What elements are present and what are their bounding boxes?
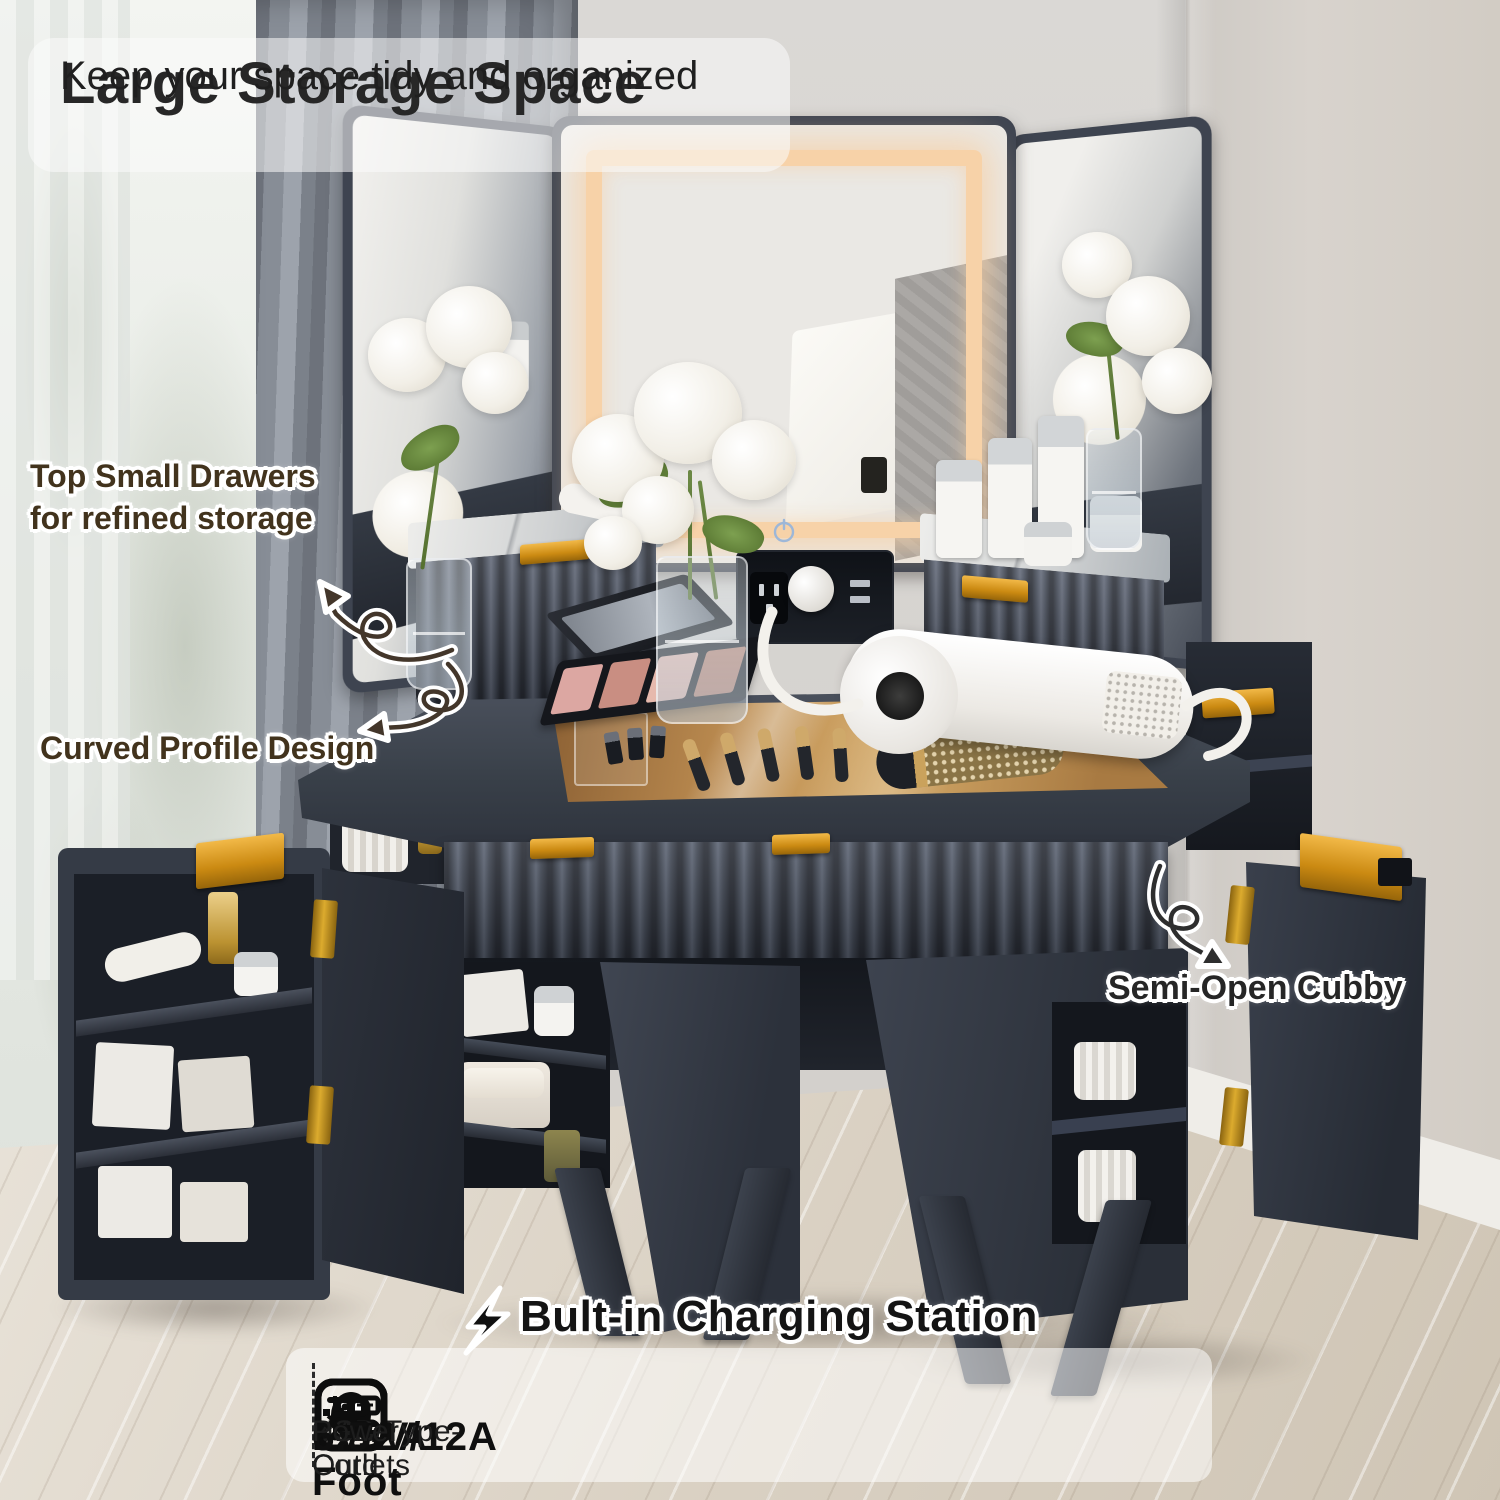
gold-handle — [772, 833, 830, 855]
storage-box — [178, 1056, 255, 1133]
cubby-shelf — [1052, 1107, 1186, 1135]
gold-hinge — [310, 899, 338, 959]
cosmetic-bottle — [936, 460, 982, 558]
handbag-flap — [462, 1068, 544, 1098]
callout-curved-profile: Curved Profile Design — [40, 728, 374, 770]
lipstick — [649, 726, 666, 759]
makeup-pan — [598, 658, 652, 709]
storage-box — [457, 969, 529, 1038]
spec-label: Power Cord — [312, 1415, 400, 1482]
hair-dryer-opening — [876, 672, 924, 720]
ac-outlet — [750, 572, 788, 624]
white-flower — [462, 352, 528, 414]
cosmetic-jar — [1024, 522, 1072, 566]
cosmetic-jar — [234, 952, 278, 996]
callout-top-small-drawers: Top Small Drawers for refined storage — [30, 456, 316, 539]
open-cabinet-door-right — [1246, 848, 1426, 1240]
charging-station-title: Bult-in Charging Station — [520, 1292, 1038, 1342]
outlet-slot — [774, 584, 779, 596]
gold-handle — [1201, 688, 1275, 719]
makeup-brush — [794, 725, 814, 780]
main-fluted-drawer — [444, 842, 1168, 966]
makeup-pan — [550, 664, 604, 715]
power-plug — [788, 566, 834, 612]
charging-spec-bar: 125V/12A 2 AC Outlets 5V/2A USB/Ty — [286, 1348, 1212, 1482]
side-storage-cabinet — [58, 848, 330, 1300]
product-label — [1378, 858, 1412, 886]
white-flower — [1142, 348, 1212, 414]
callout-line: for refined storage — [30, 498, 316, 540]
cosmetic-jar — [534, 986, 574, 1036]
water-line — [665, 640, 739, 643]
hair-dryer-grille — [1101, 670, 1183, 740]
storage-box — [180, 1182, 248, 1242]
open-cabinet-door-left — [322, 858, 464, 1294]
lipstick — [627, 728, 644, 761]
open-storage-cavity — [446, 962, 610, 1188]
outlet-slot — [759, 584, 764, 596]
cosmetic-bottle — [208, 892, 238, 964]
glass-vase — [656, 556, 748, 724]
gold-hinge — [306, 1085, 334, 1145]
water-line — [413, 632, 465, 635]
gold-handle — [530, 837, 594, 859]
handbag — [456, 1062, 550, 1128]
white-flower — [1106, 276, 1190, 356]
makeup-brush — [681, 737, 712, 792]
product-infographic: Large Storage Space Keep your space tidy… — [0, 0, 1500, 1500]
glass-vase — [1086, 428, 1142, 550]
white-flower — [584, 516, 642, 570]
makeup-brush — [719, 731, 746, 786]
white-flower — [712, 420, 796, 500]
storage-box — [92, 1042, 174, 1130]
callout-semi-open-cubby: Semi-Open Cubby — [1108, 966, 1403, 1010]
makeup-brush — [832, 728, 849, 783]
glass-vase — [406, 558, 472, 690]
usb-c-port — [850, 596, 870, 603]
outlet-ground — [766, 604, 773, 612]
callout-line: Top Small Drawers — [30, 456, 316, 498]
page-subtitle: Keep your space tidy and organized — [60, 54, 698, 99]
makeup-brush — [757, 727, 781, 783]
mirror-touch-power-button — [769, 516, 799, 546]
title-card: Large Storage Space Keep your space tidy… — [28, 38, 790, 172]
usb-port — [850, 580, 870, 587]
water-line — [1092, 491, 1136, 494]
storage-box — [98, 1166, 172, 1238]
storage-cup — [1074, 1042, 1136, 1100]
